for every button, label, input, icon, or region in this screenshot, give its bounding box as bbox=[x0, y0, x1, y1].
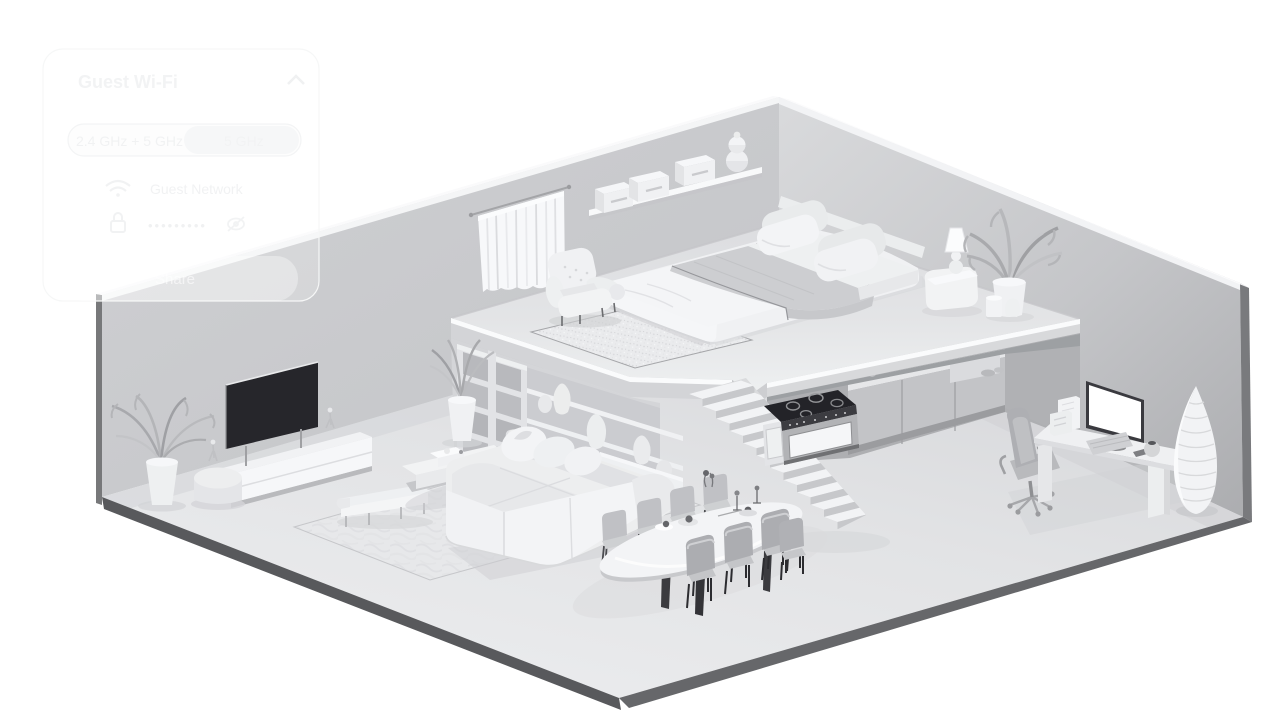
svg-text:Guest Network: Guest Network bbox=[150, 181, 244, 197]
svg-text:•••••••••: ••••••••• bbox=[148, 218, 207, 233]
svg-text:2.4 GHz + 5 GHz: 2.4 GHz + 5 GHz bbox=[76, 133, 183, 149]
svg-text:Share: Share bbox=[155, 271, 195, 288]
svg-text:5 GHz: 5 GHz bbox=[224, 133, 264, 149]
svg-text:Guest Wi-Fi: Guest Wi-Fi bbox=[78, 72, 178, 92]
